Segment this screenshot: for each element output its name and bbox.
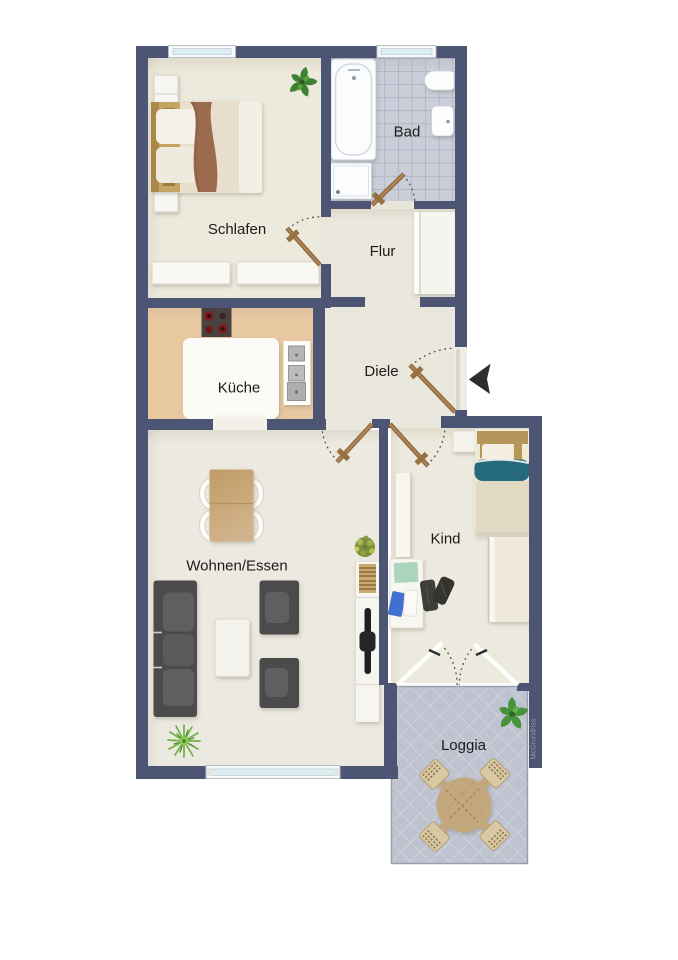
svg-text:Diele: Diele [364,363,398,380]
svg-text:Schlafen: Schlafen [208,221,266,238]
svg-text:Wohnen/Essen: Wohnen/Essen [186,558,287,575]
svg-text:Kind: Kind [430,531,460,548]
svg-text:Bad: Bad [394,124,421,141]
svg-text:McGrundriss: McGrundriss [529,718,538,759]
svg-text:Flur: Flur [370,243,396,260]
svg-text:Küche: Küche [218,380,261,397]
svg-text:Loggia: Loggia [441,737,487,754]
